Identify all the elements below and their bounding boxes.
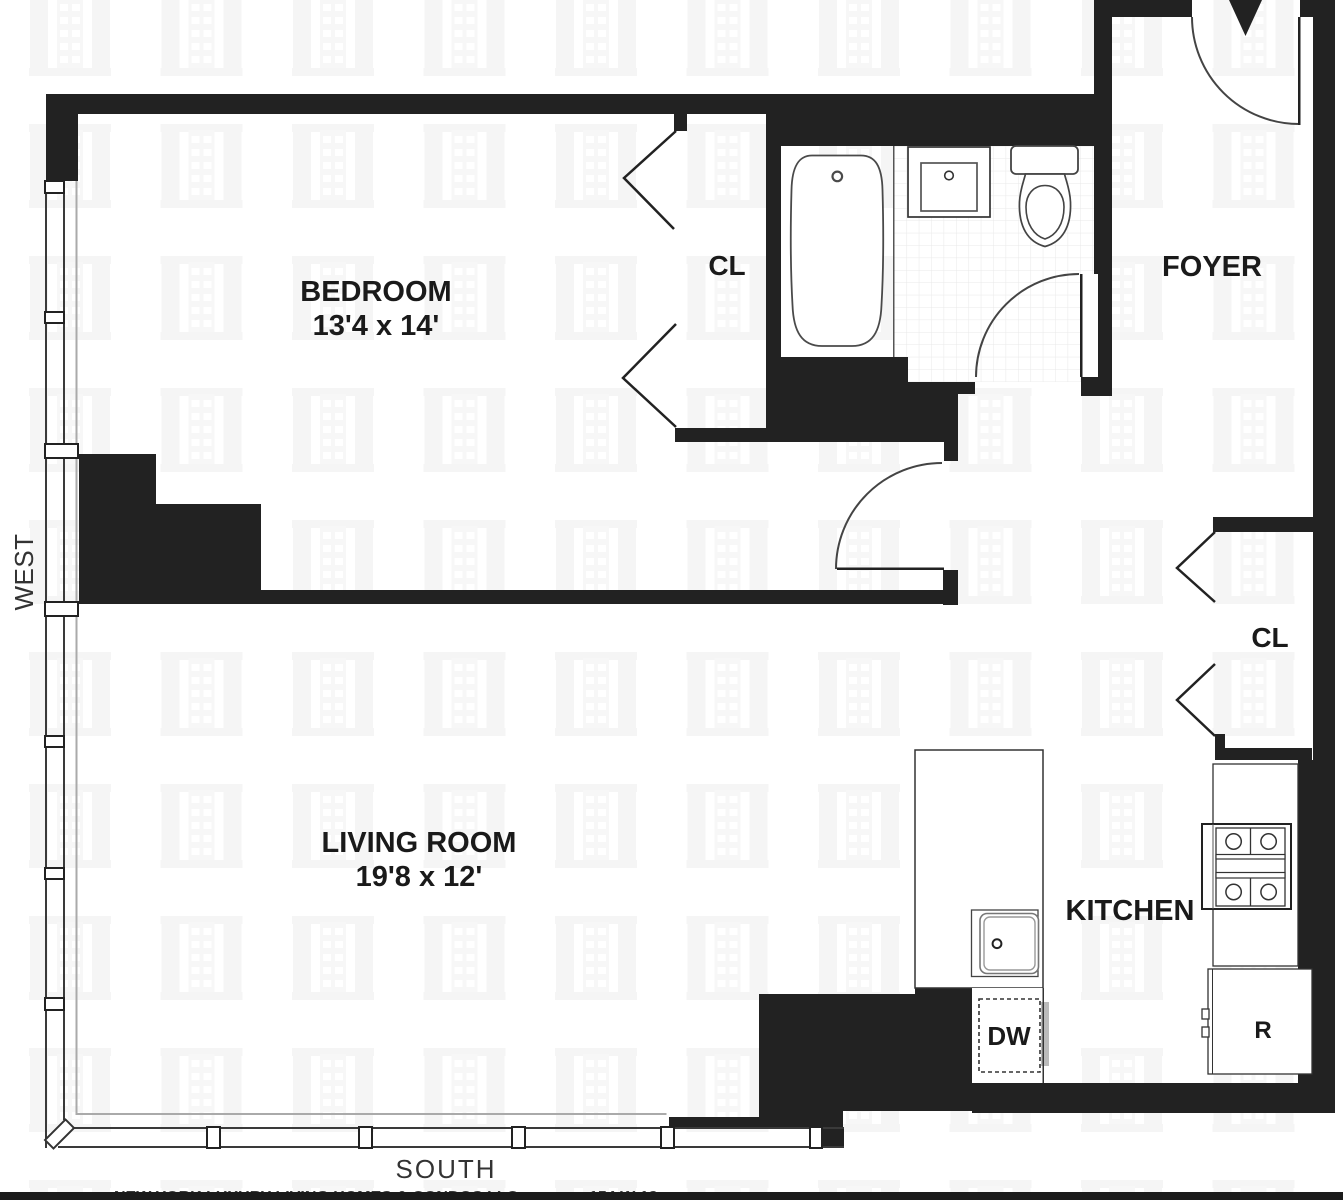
svg-text:LIVING ROOM: LIVING ROOM [322, 827, 517, 859]
svg-text:FOYER: FOYER [1162, 251, 1262, 283]
svg-text:DW: DW [987, 1021, 1031, 1051]
svg-text:WEST: WEST [9, 533, 39, 610]
svg-text:BEDROOM: BEDROOM [300, 276, 451, 308]
svg-text:13'4 x 14': 13'4 x 14' [313, 310, 440, 342]
svg-text:R: R [1254, 1017, 1271, 1044]
svg-text:CL: CL [1251, 622, 1288, 653]
svg-text:19'8 x 12': 19'8 x 12' [356, 861, 483, 893]
svg-text:SOUTH: SOUTH [396, 1154, 497, 1184]
svg-text:CL: CL [708, 250, 745, 281]
svg-text:KITCHEN: KITCHEN [1066, 895, 1195, 927]
